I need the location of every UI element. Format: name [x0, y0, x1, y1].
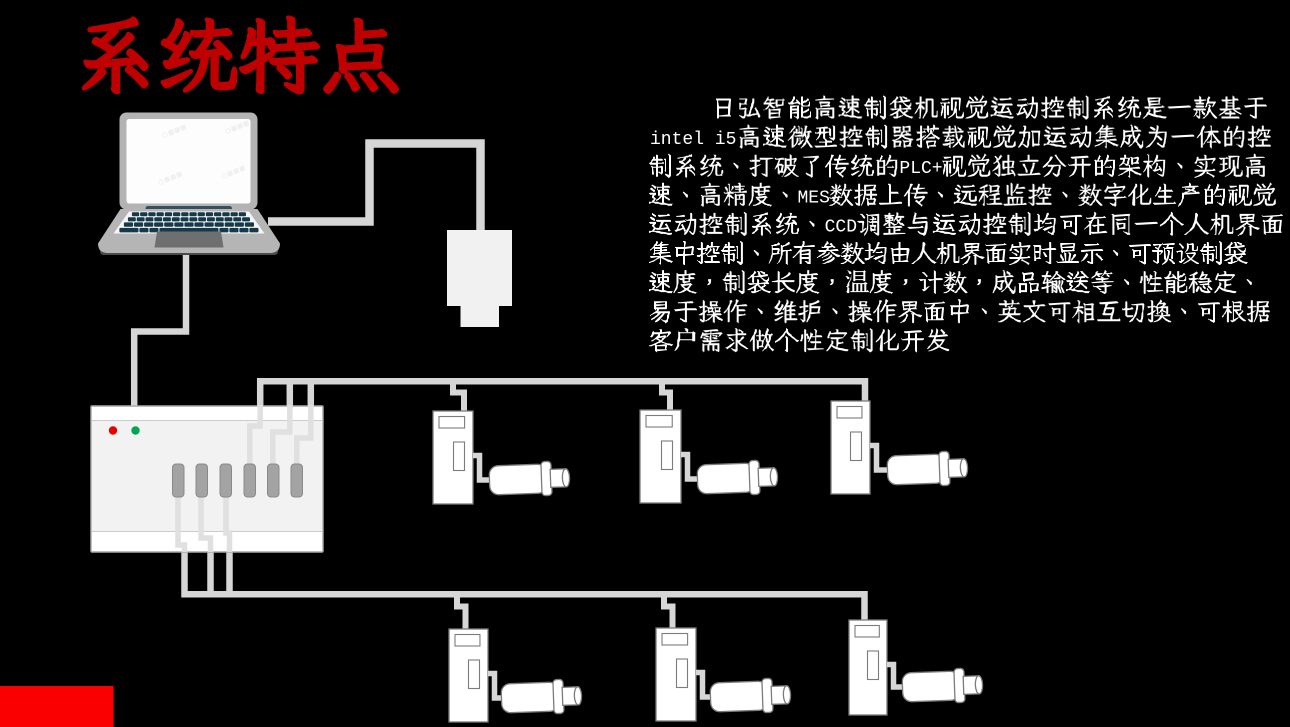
svg-text:MES: MES — [798, 188, 830, 208]
svg-text:CCD: CCD — [825, 217, 857, 237]
svg-text:PLC+: PLC+ — [899, 159, 942, 179]
svg-text:intel i5: intel i5 — [650, 130, 736, 150]
